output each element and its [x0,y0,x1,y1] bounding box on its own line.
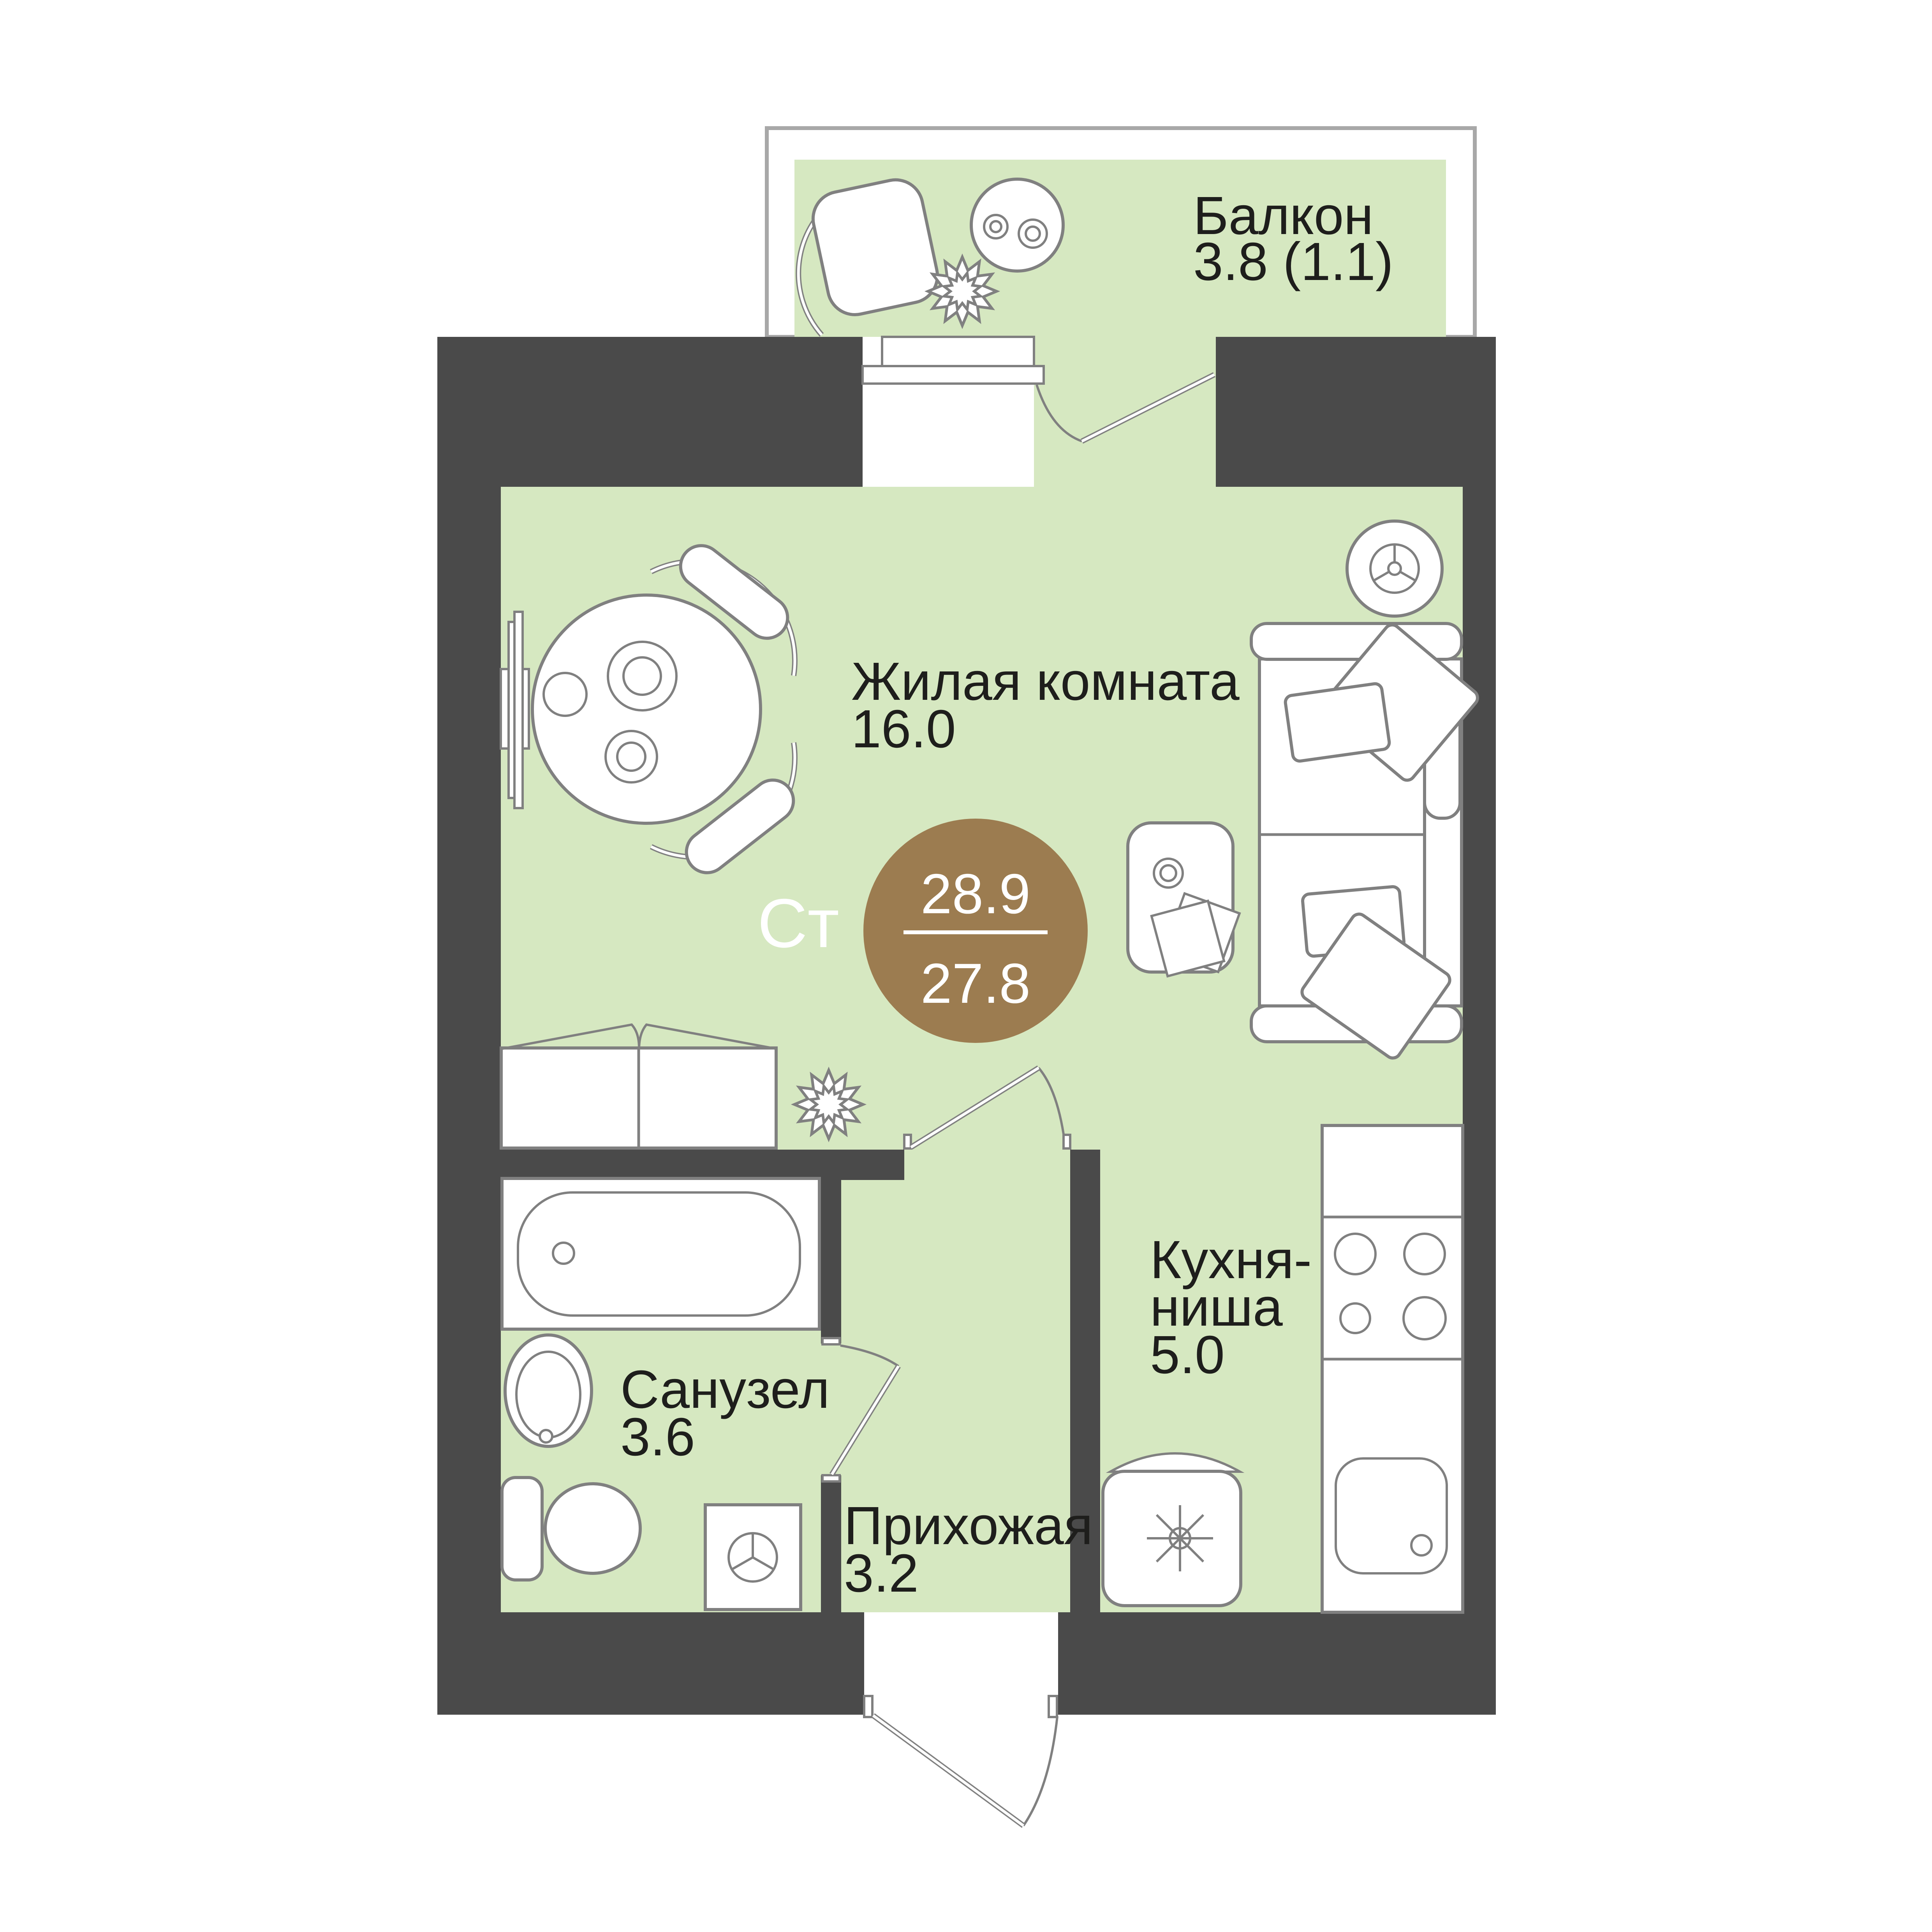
burner-1 [1335,1234,1375,1274]
burner-2 [1404,1234,1445,1274]
sofa-pillow-2 [1284,683,1390,762]
toilet-bowl [545,1484,640,1573]
balcony-area: 3.8 (1.1) [1193,232,1393,292]
door-leaf-inner [873,1715,1023,1826]
door-arc [1023,1716,1057,1826]
entry-jamb-left [864,1696,872,1717]
dining-table [532,595,761,823]
window-outer-frame [882,337,1034,366]
apartment-type-label: Ст [757,884,839,962]
wall-top [437,337,882,487]
washing-machine [705,1505,801,1610]
hall-door-jamb-right [1064,1135,1070,1148]
living-area-value: 27.8 [921,952,1030,1015]
entry-jamb-right [1049,1696,1057,1717]
total-area-value: 28.9 [921,862,1030,925]
plate-medium-inner [617,743,645,771]
kitchen-sink [1336,1458,1447,1573]
wall-bathroom-right-lower [821,1475,841,1612]
bathtub [502,1178,819,1329]
wall-bathroom-right-upper [821,1180,841,1344]
sink-drain [540,1430,552,1442]
fan-center [1388,562,1401,575]
balcony-cup-2-inner [1026,227,1040,241]
wall-bottom-left [437,1612,864,1715]
kitchen-sink-drain [1411,1535,1432,1555]
coffee-table [1128,823,1240,976]
cup-inner [1161,865,1176,881]
wall-bottom-right [1058,1612,1496,1715]
hall-area: 3.2 [844,1543,919,1603]
bathtub-drain [553,1243,574,1264]
living-area: 16.0 [851,699,956,759]
floorplan-stage: Балкон 3.8 (1.1) Жилая комната 16.0 Кухн… [0,0,1932,1932]
window-sill [863,366,1044,384]
plate-small [544,673,586,716]
burner-4 [1404,1297,1446,1339]
kitchen-area: 5.0 [1150,1325,1225,1385]
wall-balcony-block [1216,337,1496,487]
wall-right [1463,487,1496,1715]
bath-door-jamb-top [822,1338,840,1344]
hall-door-jamb-left [904,1135,911,1148]
plate-large-inner [623,657,661,695]
wall-left [437,337,501,1715]
tv-screen [514,612,523,808]
wall-bathroom-top [501,1150,904,1180]
bathroom-area: 3.6 [620,1407,695,1467]
kitchen-counter [1322,1125,1463,1612]
sofa [1251,622,1481,1061]
sink-bowl-inner [516,1352,580,1437]
bath-door-jamb-bottom [822,1475,840,1481]
bathroom-sink [505,1335,592,1446]
door-entry [873,1715,1057,1826]
toilet [502,1478,640,1580]
snowflake-icon [1147,1505,1213,1571]
fridge [1103,1453,1241,1606]
burner-3 [1340,1303,1370,1333]
balcony-cup-1-inner [990,221,1001,232]
balcony-window [863,337,1044,487]
balcony-door-opening [1034,337,1216,487]
fan-circle [1347,521,1442,616]
toilet-tank [502,1478,542,1580]
floorplan-svg: Балкон 3.8 (1.1) Жилая комната 16.0 Кухн… [0,0,1932,1932]
entry-opening [872,1612,1049,1715]
balcony-chair-seat [808,175,942,320]
balcony-table [971,179,1063,271]
